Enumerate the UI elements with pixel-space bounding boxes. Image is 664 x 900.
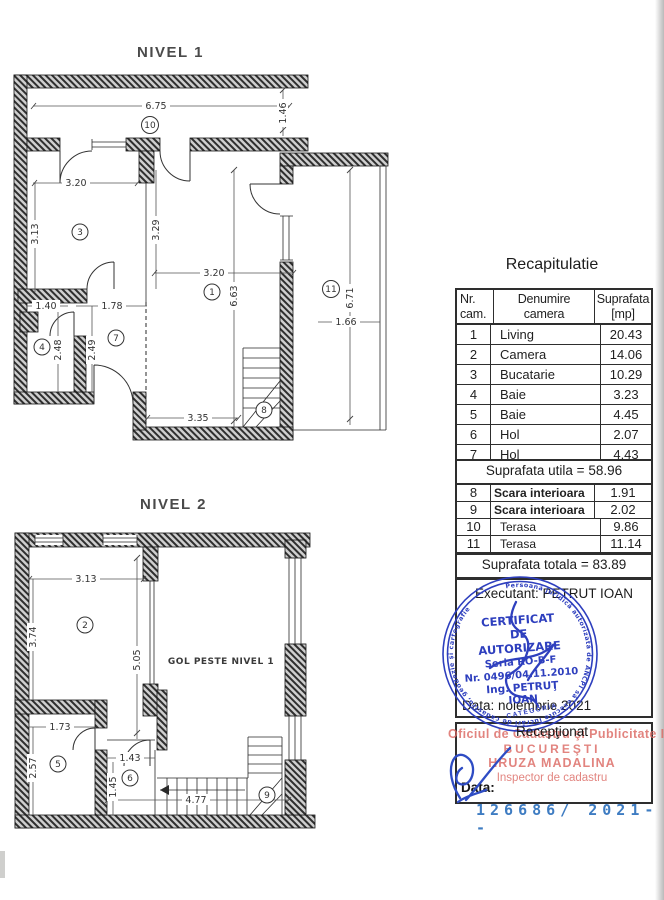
- table-row: 11Terasa11.14: [457, 535, 651, 552]
- svg-text:4.77: 4.77: [185, 795, 206, 806]
- recap-title: Recapitulatie: [455, 256, 649, 274]
- svg-text:1.46: 1.46: [278, 102, 289, 123]
- table-row: 9Scara interioara2.02: [457, 501, 651, 518]
- svg-text:3.20: 3.20: [203, 268, 224, 279]
- table-row: 8Scara interioara1.91: [457, 485, 651, 501]
- header-nr: Nr.: [460, 292, 493, 307]
- svg-text:1.43: 1.43: [119, 753, 140, 764]
- svg-text:1.78: 1.78: [101, 301, 122, 312]
- svg-text:6.71: 6.71: [345, 287, 356, 308]
- certification-stamp: Persoană juridică autorizată de ANCPI să…: [438, 572, 603, 737]
- recap-table-secondary: 8Scara interioara1.91 9Scara interioara2…: [455, 483, 653, 554]
- svg-text:2.49: 2.49: [87, 339, 98, 360]
- scanned-cadastral-page: NIVEL 1: [0, 0, 664, 900]
- svg-text:6.63: 6.63: [229, 285, 240, 306]
- suprafata-utila: Suprafata utila = 58.96: [455, 459, 653, 485]
- nivel1-floor-plan: 6.75 1.46 3.20 3.13 3.29 3.20 6.63 6.71 …: [6, 66, 398, 450]
- svg-text:1: 1: [209, 288, 215, 298]
- receptionat-title: Recepţionat: [455, 724, 649, 739]
- svg-text:1.66: 1.66: [335, 317, 356, 328]
- table-row: 4Baie3.23: [457, 384, 651, 404]
- svg-text:1.45: 1.45: [108, 776, 119, 797]
- header-suprafata: Suprafata: [595, 292, 651, 307]
- svg-text:1.73: 1.73: [49, 722, 70, 733]
- gol-label: GOL PESTE NIVEL 1: [168, 657, 274, 667]
- table-row: 5Baie4.45: [457, 404, 651, 424]
- svg-text:4: 4: [39, 343, 45, 353]
- svg-text:9: 9: [264, 791, 270, 801]
- scan-edge-shadow: [655, 0, 664, 900]
- svg-text:3.20: 3.20: [65, 178, 86, 189]
- recap-table-main: Nr.cam. Denumirecamera Suprafata[mp] 1Li…: [455, 288, 653, 466]
- svg-text:7: 7: [113, 334, 119, 344]
- svg-text:3: 3: [77, 228, 83, 238]
- svg-text:5: 5: [55, 760, 61, 770]
- scan-edge-mark: [0, 851, 5, 878]
- nivel2-floor-plan: 3.13 3.74 5.05 1.73 2.57 1.43 1.45 4.77 …: [10, 524, 350, 840]
- nivel2-stairs: [157, 737, 282, 815]
- nivel2-title: NIVEL 2: [140, 496, 207, 513]
- svg-text:3.29: 3.29: [151, 219, 162, 240]
- svg-text:8: 8: [261, 406, 267, 416]
- table-row: 3Bucatarie10.29: [457, 364, 651, 384]
- nivel1-title: NIVEL 1: [137, 44, 204, 61]
- nivel2-dimension-lines: [27, 555, 291, 815]
- nivel1-walls: [14, 75, 388, 440]
- table-row: 2Camera14.06: [457, 344, 651, 364]
- svg-text:3.74: 3.74: [28, 626, 39, 647]
- inspector-signature: [436, 740, 566, 806]
- svg-text:DE: DE: [509, 626, 527, 641]
- table-header-row: Nr.cam. Denumirecamera Suprafata[mp]: [457, 290, 651, 324]
- table-row: 1Living20.43: [457, 324, 651, 344]
- nivel2-walls: [15, 533, 315, 828]
- table-row: 6Hol2.07: [457, 424, 651, 444]
- svg-text:2: 2: [82, 621, 88, 631]
- svg-text:3.13: 3.13: [30, 223, 41, 244]
- svg-text:1.40: 1.40: [35, 301, 56, 312]
- svg-text:2.48: 2.48: [53, 339, 64, 360]
- svg-text:2.57: 2.57: [28, 757, 39, 778]
- svg-text:5.05: 5.05: [132, 649, 143, 670]
- svg-text:3.35: 3.35: [187, 413, 208, 424]
- svg-text:3.13: 3.13: [75, 574, 96, 585]
- svg-text:10: 10: [144, 121, 156, 131]
- nivel2-windows: [35, 535, 306, 760]
- svg-text:6.75: 6.75: [145, 101, 166, 112]
- registration-number: 126686/ 2021--: [476, 801, 664, 837]
- svg-text:6: 6: [127, 774, 133, 784]
- svg-text:11: 11: [325, 285, 336, 295]
- header-denumire: Denumire: [494, 292, 594, 307]
- table-row: 10Terasa9.86: [457, 518, 651, 535]
